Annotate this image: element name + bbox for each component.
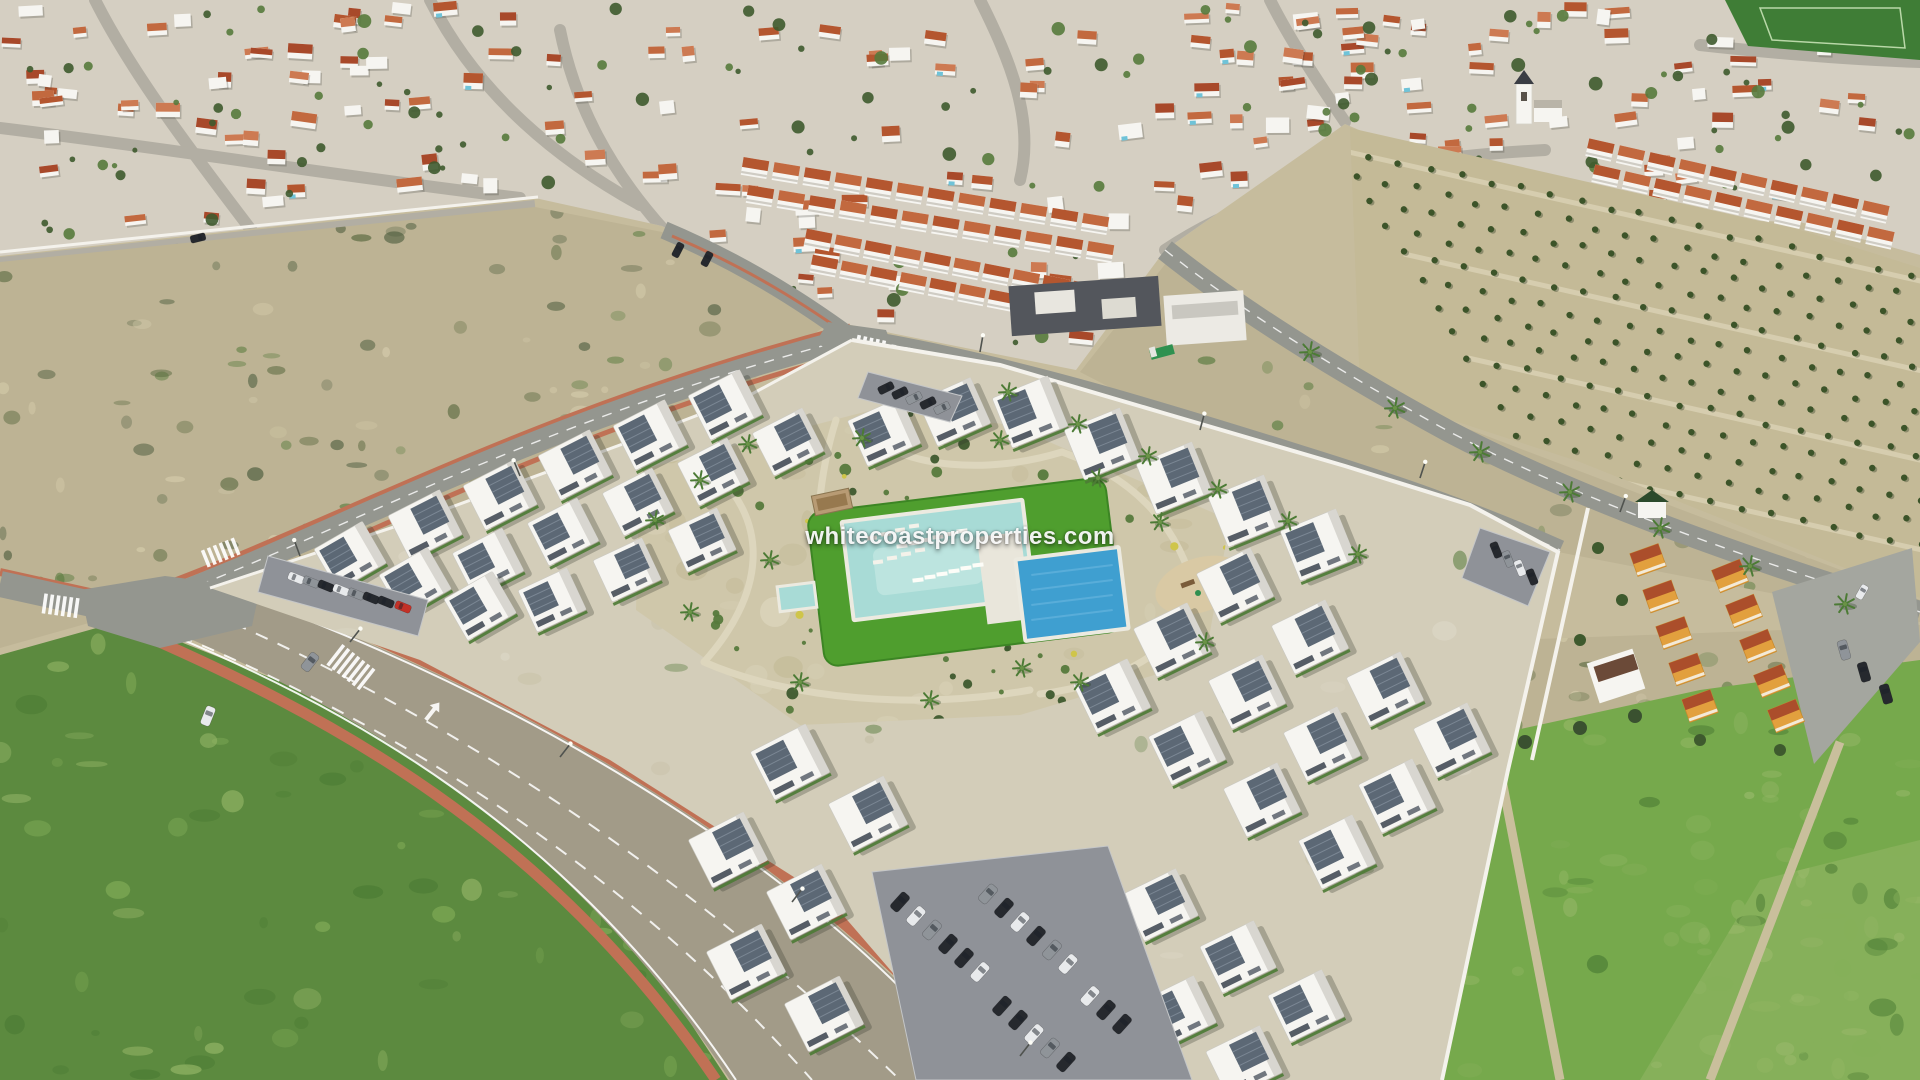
watermark-text: whitecoastproperties.com xyxy=(805,523,1114,551)
aerial-photo: whitecoastproperties.com xyxy=(0,0,1920,1080)
